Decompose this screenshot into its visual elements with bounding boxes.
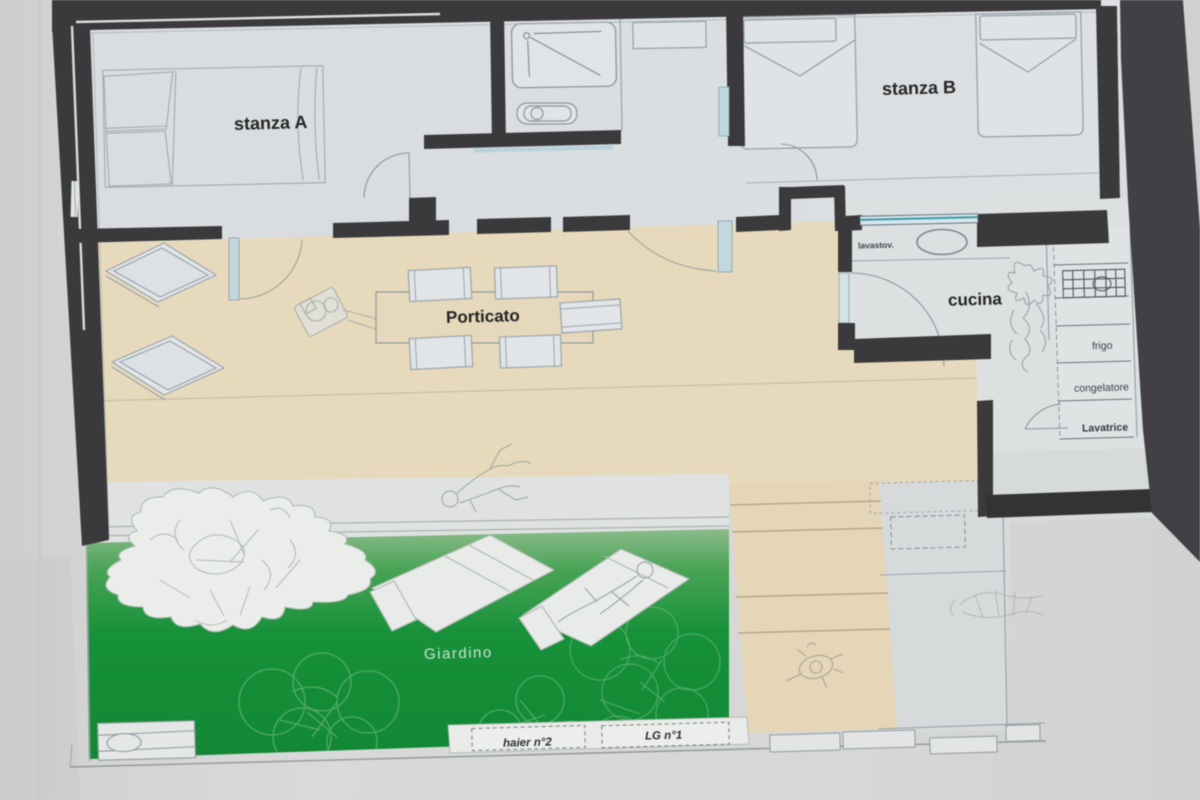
svg-text:frigo: frigo	[1092, 340, 1113, 353]
svg-text:LG n°1: LG n°1	[645, 730, 683, 743]
svg-text:Lavatrice: Lavatrice	[1082, 421, 1129, 434]
svg-text:congelatore: congelatore	[1074, 381, 1129, 394]
svg-text:stanza A: stanza A	[234, 112, 308, 134]
svg-text:haier n°2: haier n°2	[503, 736, 553, 749]
svg-text:stanza B: stanza B	[882, 77, 957, 99]
svg-text:Giardino: Giardino	[424, 644, 493, 663]
svg-text:cucina: cucina	[948, 289, 1003, 309]
svg-text:Porticato: Porticato	[446, 306, 520, 327]
svg-text:lavastov.: lavastov.	[858, 240, 894, 251]
